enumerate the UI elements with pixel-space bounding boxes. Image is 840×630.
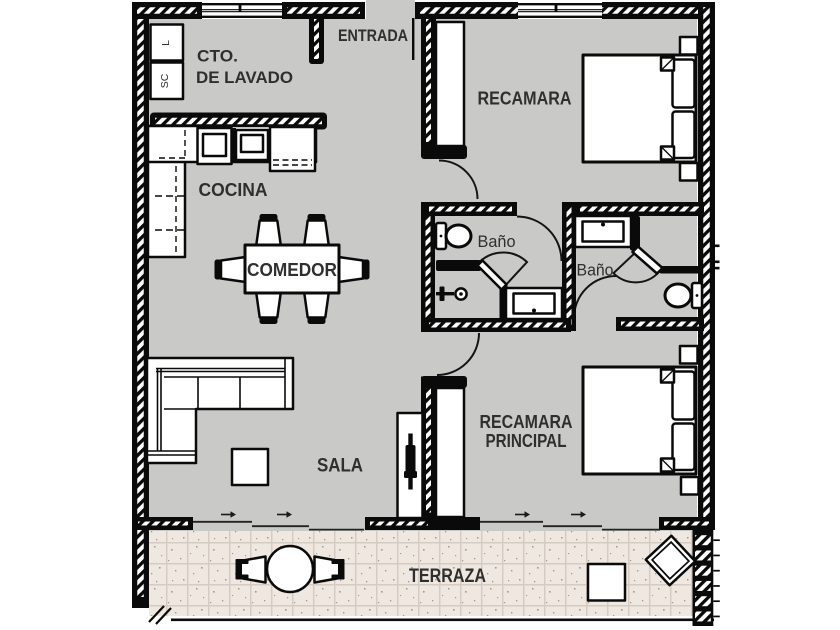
svg-text:L: L [160, 40, 172, 46]
svg-text:SC: SC [159, 73, 171, 88]
svg-text:RECAMARA: RECAMARA [480, 412, 573, 432]
svg-text:DE LAVADO: DE LAVADO [196, 68, 293, 87]
svg-text:Baño: Baño [478, 233, 516, 251]
svg-text:RECAMARA: RECAMARA [478, 89, 572, 109]
svg-text:Baño: Baño [577, 262, 614, 280]
svg-text:ENTRADA: ENTRADA [338, 26, 408, 45]
svg-text:COMEDOR: COMEDOR [247, 260, 337, 280]
svg-text:COCINA: COCINA [199, 179, 268, 200]
svg-text:TERRAZA: TERRAZA [409, 566, 486, 587]
svg-text:CTO.: CTO. [197, 47, 238, 66]
svg-text:PRINCIPAL: PRINCIPAL [486, 431, 567, 451]
svg-text:SALA: SALA [317, 456, 363, 477]
